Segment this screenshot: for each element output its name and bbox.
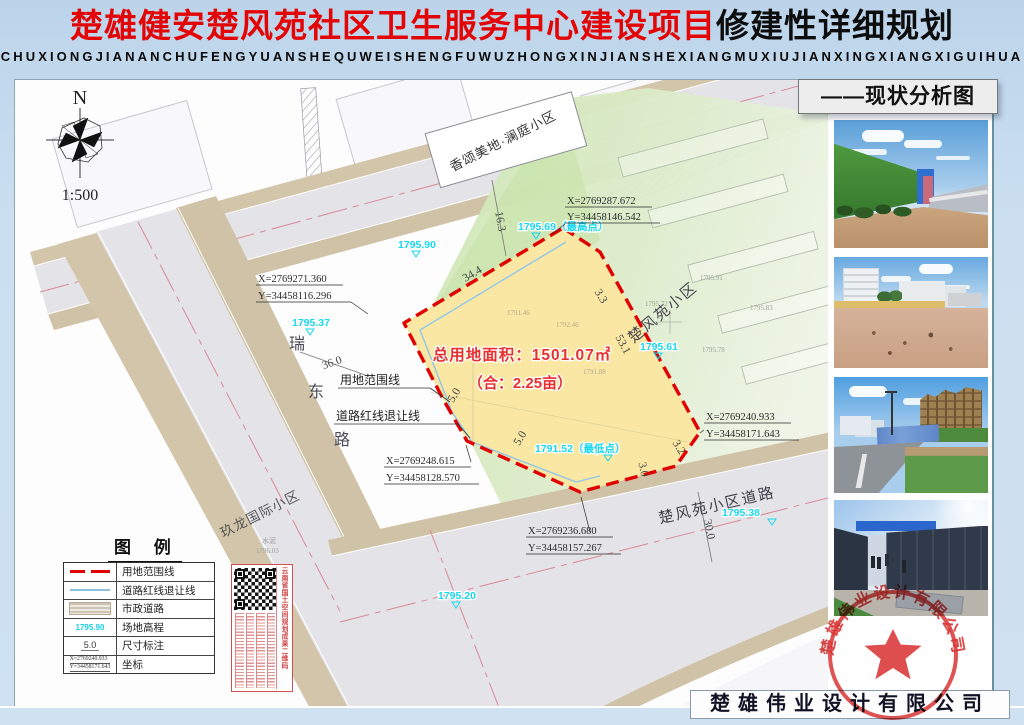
spot-elevation: 1792.46 bbox=[556, 321, 579, 329]
coordinate-y: Y=34458128.570 bbox=[386, 473, 460, 484]
drawing-type-label: ——现状分析图 bbox=[798, 79, 998, 114]
legend-label: 尺寸标注 bbox=[117, 638, 214, 653]
legend: 用地范围线 道路红线退让线 市政道路 1795.90 场地高程 5.0 尺寸标注… bbox=[63, 562, 215, 674]
legend-row: X=2769240.933Y=34458171.643 坐标 bbox=[64, 656, 214, 674]
road-label-ruidong-char: 东 bbox=[308, 383, 324, 401]
site-photo-3 bbox=[834, 377, 988, 493]
legend-label: 道路红线退让线 bbox=[117, 583, 214, 598]
qr-caption: 云南省国土空间规划成果二维码 bbox=[276, 567, 290, 689]
legend-symbol-setback bbox=[64, 582, 117, 600]
coordinate-y: Y=34458146.542 bbox=[567, 212, 641, 223]
spot-elevation: 1791.46 bbox=[507, 309, 530, 317]
setback-line-label: 道路红线退让线 bbox=[336, 408, 420, 423]
coordinate-x: X=2769236.680 bbox=[528, 526, 597, 537]
sheet-header: 楚雄健安楚风苑社区卫生服务中心建设项目修建性详细规划 CHUXIONGJIANA… bbox=[0, 4, 1024, 64]
spot-elevation: 1795.78 bbox=[702, 346, 725, 354]
elevation-label: 1795.90 bbox=[398, 239, 436, 251]
coordinate-y: Y=34458171.643 bbox=[706, 429, 780, 440]
legend-row: 道路红线退让线 bbox=[64, 582, 214, 601]
company-seal: 楚雄伟业设计有限公司 bbox=[813, 583, 973, 723]
spot-elevation: 1795.91 bbox=[700, 274, 723, 282]
seal-star bbox=[865, 629, 922, 679]
road-label-ruidong-char: 瑞 bbox=[289, 335, 305, 353]
legend-label: 场地高程 bbox=[117, 620, 214, 635]
spot-elevation: 1791.88 bbox=[583, 368, 606, 376]
site-photo-2 bbox=[834, 257, 988, 368]
legend-row: 1795.90 场地高程 bbox=[64, 619, 214, 638]
elevation-label: 1795.61 bbox=[640, 341, 678, 353]
legend-label: 市政道路 bbox=[117, 601, 214, 616]
parcel-area-text: 总用地面积：1501.07㎡ bbox=[433, 345, 612, 364]
legend-symbol-elevation: 1795.90 bbox=[64, 619, 117, 637]
boundary-line-label: 用地范围线 bbox=[340, 373, 400, 387]
legend-symbol-dimension: 5.0 bbox=[64, 637, 117, 655]
road-label-ruidong-char: 路 bbox=[334, 431, 350, 449]
qr-certificate-block: 云南省国土空间规划成果二维码 bbox=[231, 564, 293, 692]
coordinate-y: Y=34458157.267 bbox=[528, 543, 602, 554]
qr-fine-print bbox=[234, 612, 276, 689]
elevation-label-low: 1791.52（最低点） bbox=[535, 442, 625, 455]
legend-symbol-boundary bbox=[64, 563, 117, 581]
parcel-area-text2: （合：2.25亩） bbox=[468, 374, 572, 392]
title-project-name: 楚雄健安楚风苑社区卫生服务中心建设项目 bbox=[70, 7, 716, 44]
page-title: 楚雄健安楚风苑社区卫生服务中心建设项目修建性详细规划 bbox=[0, 4, 1024, 48]
coordinate-x: X=2769248.615 bbox=[386, 456, 455, 467]
coordinate-x: X=2769240.933 bbox=[706, 412, 775, 423]
legend-symbol-coordinate: X=2769240.933Y=34458171.643 bbox=[64, 656, 117, 674]
title-plan-type: 修建性详细规划 bbox=[716, 7, 954, 44]
legend-row: 用地范围线 bbox=[64, 563, 214, 582]
spot-elevation: 1796.03 bbox=[256, 547, 279, 555]
legend-row: 5.0 尺寸标注 bbox=[64, 637, 214, 656]
coordinate-x: X=2769271.360 bbox=[258, 274, 327, 285]
north-letter: N bbox=[73, 87, 87, 109]
legend-title: 图 例 bbox=[108, 533, 182, 564]
coordinate-y: Y=34458116.296 bbox=[258, 291, 332, 302]
spot-elevation: 1795.83 bbox=[750, 304, 773, 312]
elevation-label: 1795.37 bbox=[292, 317, 330, 329]
title-pinyin: CHUXIONGJIANANCHUFENGYUANSHEQUWEISHENGFU… bbox=[0, 49, 1024, 64]
map-scale: 1:500 bbox=[62, 187, 98, 204]
legend-label: 坐标 bbox=[117, 657, 214, 672]
legend-label: 用地范围线 bbox=[117, 564, 214, 579]
surface-label: 水泥 bbox=[262, 536, 276, 545]
site-photo-1 bbox=[834, 120, 988, 248]
qr-code bbox=[234, 568, 276, 610]
legend-row: 市政道路 bbox=[64, 600, 214, 619]
coordinate-x: X=2769287.672 bbox=[567, 196, 636, 207]
elevation-label: 1795.20 bbox=[438, 590, 476, 602]
legend-symbol-road bbox=[64, 600, 117, 618]
